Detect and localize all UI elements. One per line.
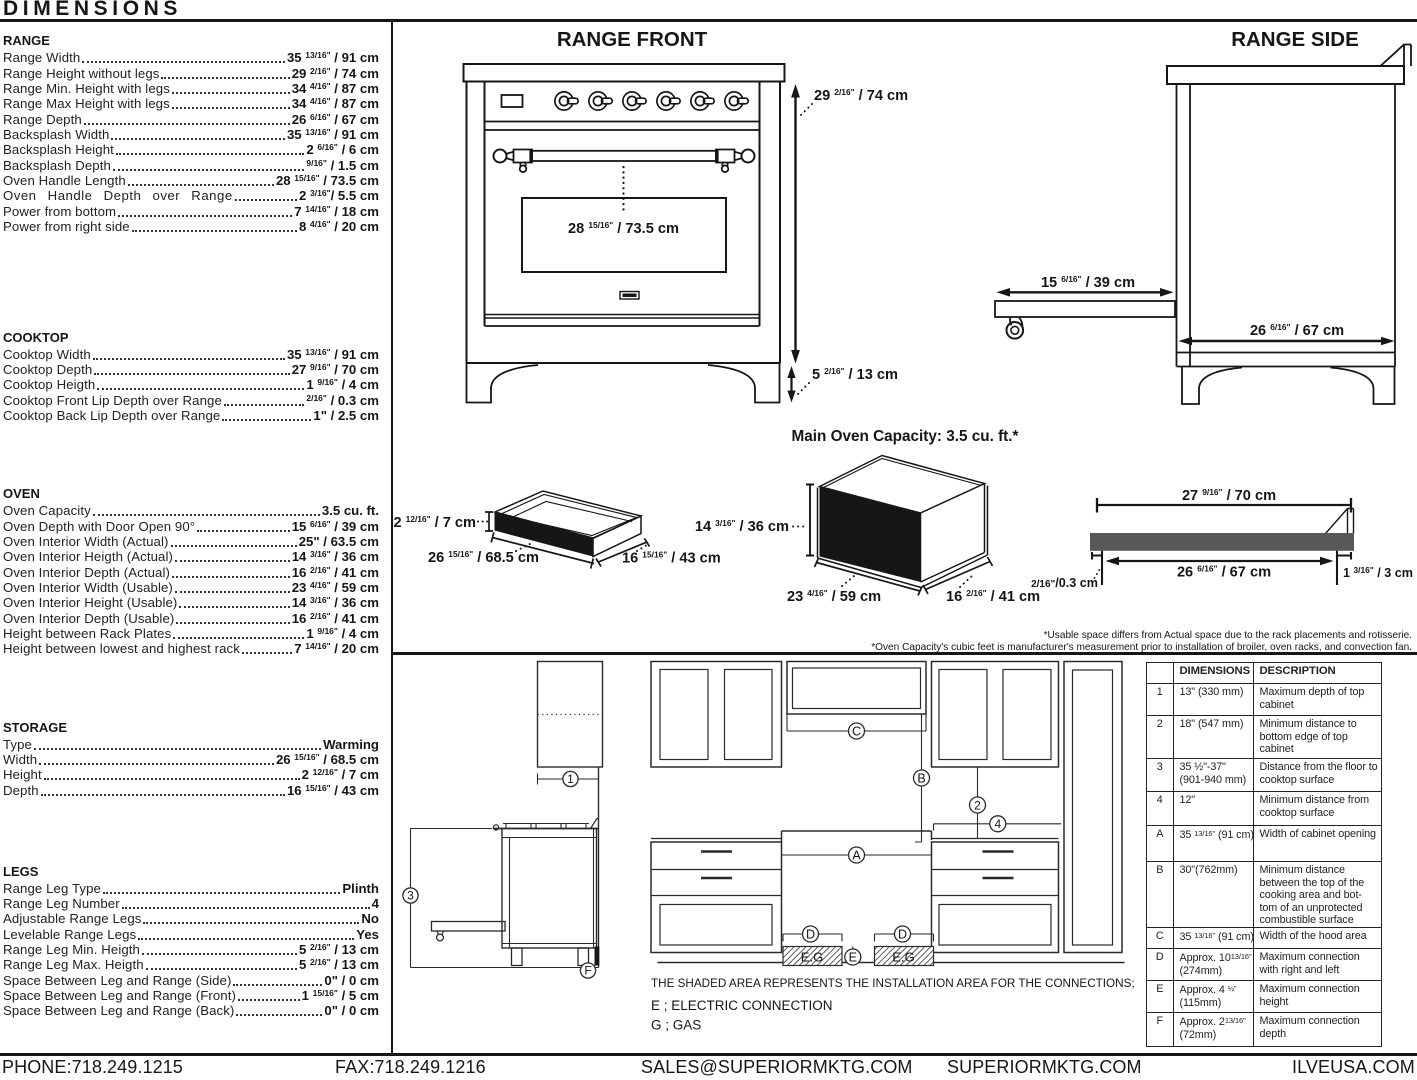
svg-text:E ; ELECTRIC CONNECTION: E ; ELECTRIC CONNECTION bbox=[651, 998, 833, 1013]
svg-text:28 15/16" / 73.5 cm: 28 15/16" / 73.5 cm bbox=[568, 220, 679, 237]
svg-text:26 6/16" / 67 cm: 26 6/16" / 67 cm bbox=[1250, 322, 1344, 339]
svg-text:1: 1 bbox=[567, 772, 574, 786]
svg-text:Main Oven Capacity: 3.5 cu. ft: Main Oven Capacity: 3.5 cu. ft.* bbox=[792, 428, 1019, 445]
svg-text:16 15/16" / 43 cm: 16 15/16" / 43 cm bbox=[622, 550, 721, 567]
svg-text:2 12/16" / 7 cm: 2 12/16" / 7 cm bbox=[393, 514, 476, 531]
svg-text:15 6/16" / 39 cm: 15 6/16" / 39 cm bbox=[1041, 274, 1135, 291]
svg-text:14 3/16" / 36 cm: 14 3/16" / 36 cm bbox=[695, 518, 789, 535]
svg-text:5 2/16" / 13 cm: 5 2/16" / 13 cm bbox=[812, 366, 898, 383]
svg-text:26 15/16" / 68.5 cm: 26 15/16" / 68.5 cm bbox=[428, 549, 539, 566]
svg-text:27 9/16" / 70 cm: 27 9/16" / 70 cm bbox=[1182, 487, 1276, 504]
svg-text:THE SHADED AREA REPRESENTS THE: THE SHADED AREA REPRESENTS THE INSTALLAT… bbox=[651, 977, 1135, 990]
svg-text:*Usable space differs from Act: *Usable space differs from Actual space … bbox=[1044, 630, 1412, 641]
svg-text:23 4/16" / 59 cm: 23 4/16" / 59 cm bbox=[787, 588, 881, 605]
svg-text:RANGE FRONT: RANGE FRONT bbox=[557, 28, 708, 51]
svg-text:29 2/16" / 74 cm: 29 2/16" / 74 cm bbox=[814, 87, 908, 104]
svg-text:1 3/16" / 3 cm: 1 3/16" / 3 cm bbox=[1343, 565, 1413, 580]
svg-text:E.G: E.G bbox=[892, 950, 914, 965]
svg-text:4: 4 bbox=[994, 817, 1001, 831]
svg-text:D: D bbox=[898, 927, 907, 941]
svg-text:F: F bbox=[584, 964, 591, 978]
svg-text:RANGE SIDE: RANGE SIDE bbox=[1231, 28, 1359, 51]
svg-text:E: E bbox=[849, 950, 857, 964]
svg-text:26 6/16" / 67 cm: 26 6/16" / 67 cm bbox=[1177, 564, 1271, 581]
svg-text:*Oven Capacity's cubic feet is: *Oven Capacity's cubic feet is manufactu… bbox=[871, 642, 1412, 653]
svg-text:2: 2 bbox=[974, 798, 981, 812]
svg-text:G ; GAS: G ; GAS bbox=[651, 1018, 701, 1033]
svg-text:E.G: E.G bbox=[801, 950, 823, 965]
svg-text:A: A bbox=[852, 848, 861, 862]
svg-text:16 2/16" / 41 cm: 16 2/16" / 41 cm bbox=[946, 588, 1040, 605]
svg-text:B: B bbox=[917, 771, 925, 785]
svg-text:D: D bbox=[806, 927, 815, 941]
svg-text:C: C bbox=[852, 724, 861, 738]
svg-text:3: 3 bbox=[407, 889, 414, 903]
svg-text:2/16"/0.3 cm: 2/16"/0.3 cm bbox=[1031, 576, 1098, 590]
